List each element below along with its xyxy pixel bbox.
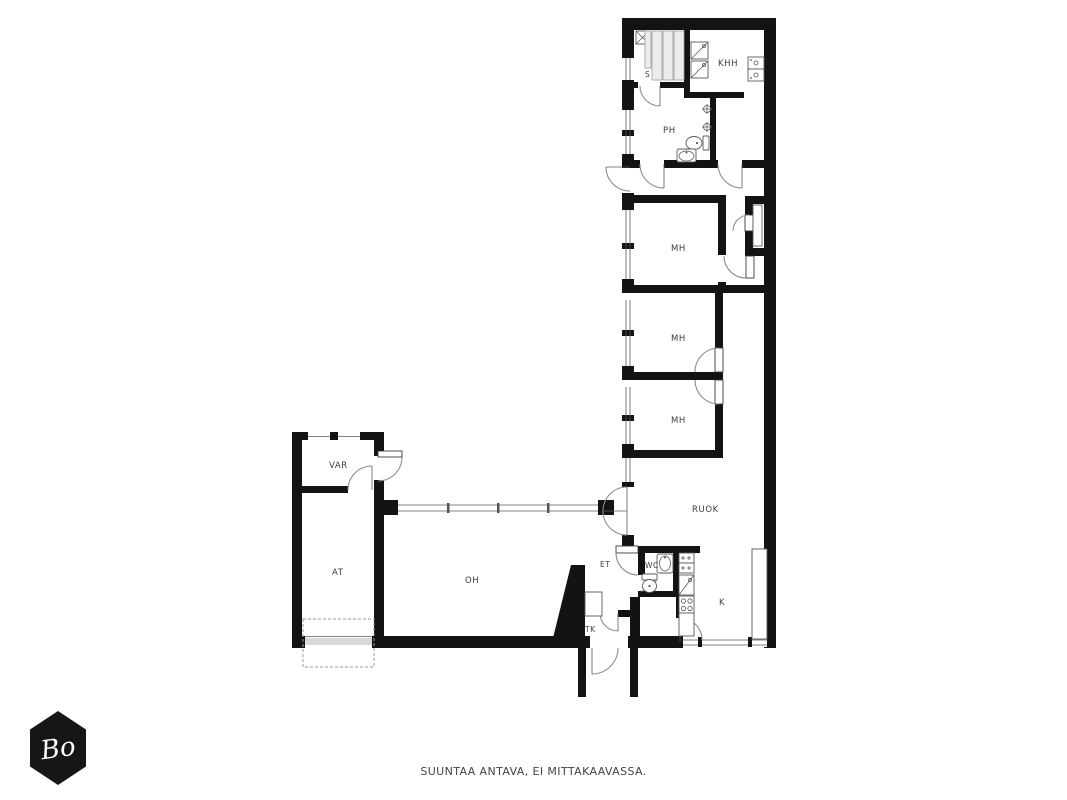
- mh1-door: [724, 256, 754, 278]
- kitchen-tall-counter: [752, 549, 767, 639]
- garage-door: [303, 619, 374, 667]
- mh3-door: [695, 380, 723, 404]
- washer-icon: [691, 42, 708, 59]
- stove-icon: [679, 596, 694, 613]
- window-sauna: [622, 58, 634, 80]
- closet-door: [733, 215, 753, 231]
- dishwasher-icon: [679, 575, 694, 595]
- room-label-ph: PH: [663, 126, 676, 136]
- room-label-mh1: MH: [671, 244, 686, 254]
- room-label-at: AT: [332, 568, 344, 578]
- room-label-tk: TK: [584, 625, 596, 634]
- wc-sink-icon: [657, 554, 673, 573]
- room-label-et: ET: [600, 560, 611, 569]
- sink-icon: [677, 149, 696, 162]
- freezer-icon: [679, 563, 694, 573]
- fixtures: [303, 31, 767, 667]
- walls: [292, 18, 776, 697]
- room-label-sauna: S: [645, 70, 650, 79]
- floor-plan: S KHH PH MH MH MH RUOK VAR AT OH ET WC K…: [0, 0, 1067, 800]
- room-label-mh2: MH: [671, 334, 686, 344]
- toilet-icon: [686, 136, 709, 150]
- brand-logo-text: Bo: [38, 732, 78, 767]
- kitchen-counter: [679, 613, 694, 636]
- et-door: [616, 546, 638, 575]
- khh-sink-icon: [748, 57, 764, 81]
- room-label-wc: WC: [645, 561, 659, 570]
- hall-exterior-door: [606, 167, 630, 191]
- oh-ruok-double-door: [603, 487, 627, 535]
- room-label-var: VAR: [329, 461, 348, 471]
- var-exterior-door: [378, 451, 402, 481]
- room-label-mh3: MH: [671, 416, 686, 426]
- sauna-door: [640, 86, 660, 106]
- tk-inner-door: [600, 613, 618, 631]
- room-label-khh: KHH: [718, 59, 738, 69]
- wc-toilet-icon: [642, 574, 657, 593]
- room-label-oh: OH: [465, 576, 479, 586]
- floorplan-page: S KHH PH MH MH MH RUOK VAR AT OH ET WC K…: [0, 0, 1067, 800]
- room-label-ruok: RUOK: [692, 505, 719, 515]
- window-oh-band: [398, 503, 598, 513]
- closet-shelf: [753, 205, 762, 246]
- mh2-door: [695, 348, 723, 372]
- room-label-k: K: [719, 598, 725, 608]
- sauna-benches: [645, 31, 684, 80]
- storage-room-door: [718, 164, 742, 188]
- washer-icon: [691, 61, 708, 78]
- var-inner-door: [348, 466, 372, 490]
- fridge-icon: [679, 553, 694, 563]
- main-entrance-door: [592, 648, 618, 674]
- ph-door: [640, 164, 664, 188]
- window-ruok: [622, 458, 634, 482]
- disclaimer-text: SUUNTAA ANTAVA, EI MITTAKAAVASSA.: [0, 765, 1067, 778]
